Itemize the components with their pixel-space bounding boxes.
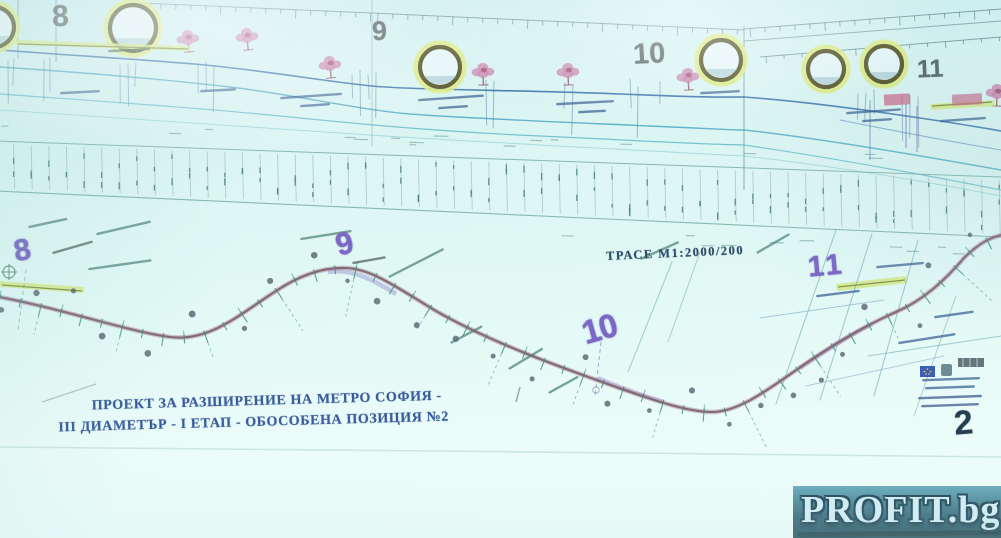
station11-structure-box-right bbox=[952, 93, 983, 106]
watermark-text: PROFIT.bg bbox=[801, 488, 1000, 532]
sheet-top-ruler-lines bbox=[18, 0, 1001, 190]
station11-structure-box-left bbox=[884, 93, 911, 105]
platform-highlight-station8-profile bbox=[16, 40, 190, 51]
profile-line-3b bbox=[744, 145, 1001, 190]
profile-station-number-8: 8 bbox=[51, 0, 69, 34]
profit-bg-watermark: PROFIT.bg bbox=[793, 486, 1001, 538]
drawing-artwork bbox=[0, 0, 1001, 538]
profile-line-2b bbox=[744, 130, 1001, 170]
programme-logo bbox=[941, 364, 952, 376]
sheet-number: 2 bbox=[952, 403, 974, 444]
benchmark-circle-cross-symbol bbox=[1, 264, 17, 280]
sheet-bottom-edge bbox=[0, 447, 1001, 457]
pencil-mark-1 bbox=[516, 387, 520, 402]
profile-station-number-10: 10 bbox=[632, 37, 666, 72]
profile-station-number-11: 11 bbox=[917, 55, 944, 85]
photo-of-metro-project-drawing: 8 9 10 11 8 9 10 11 ТРАСЕ М1:2000/200 ПР… bbox=[0, 0, 1001, 538]
longitudinal-profile-ground-lines bbox=[0, 50, 1001, 196]
eu-flag-logo bbox=[920, 366, 935, 377]
plan-station-number-11: 11 bbox=[807, 248, 846, 284]
scale-bar-block bbox=[958, 358, 984, 367]
profile-station-number-9: 9 bbox=[371, 16, 387, 48]
profile-line-extra-right bbox=[840, 120, 1001, 150]
station10-leader-circle bbox=[593, 387, 599, 393]
